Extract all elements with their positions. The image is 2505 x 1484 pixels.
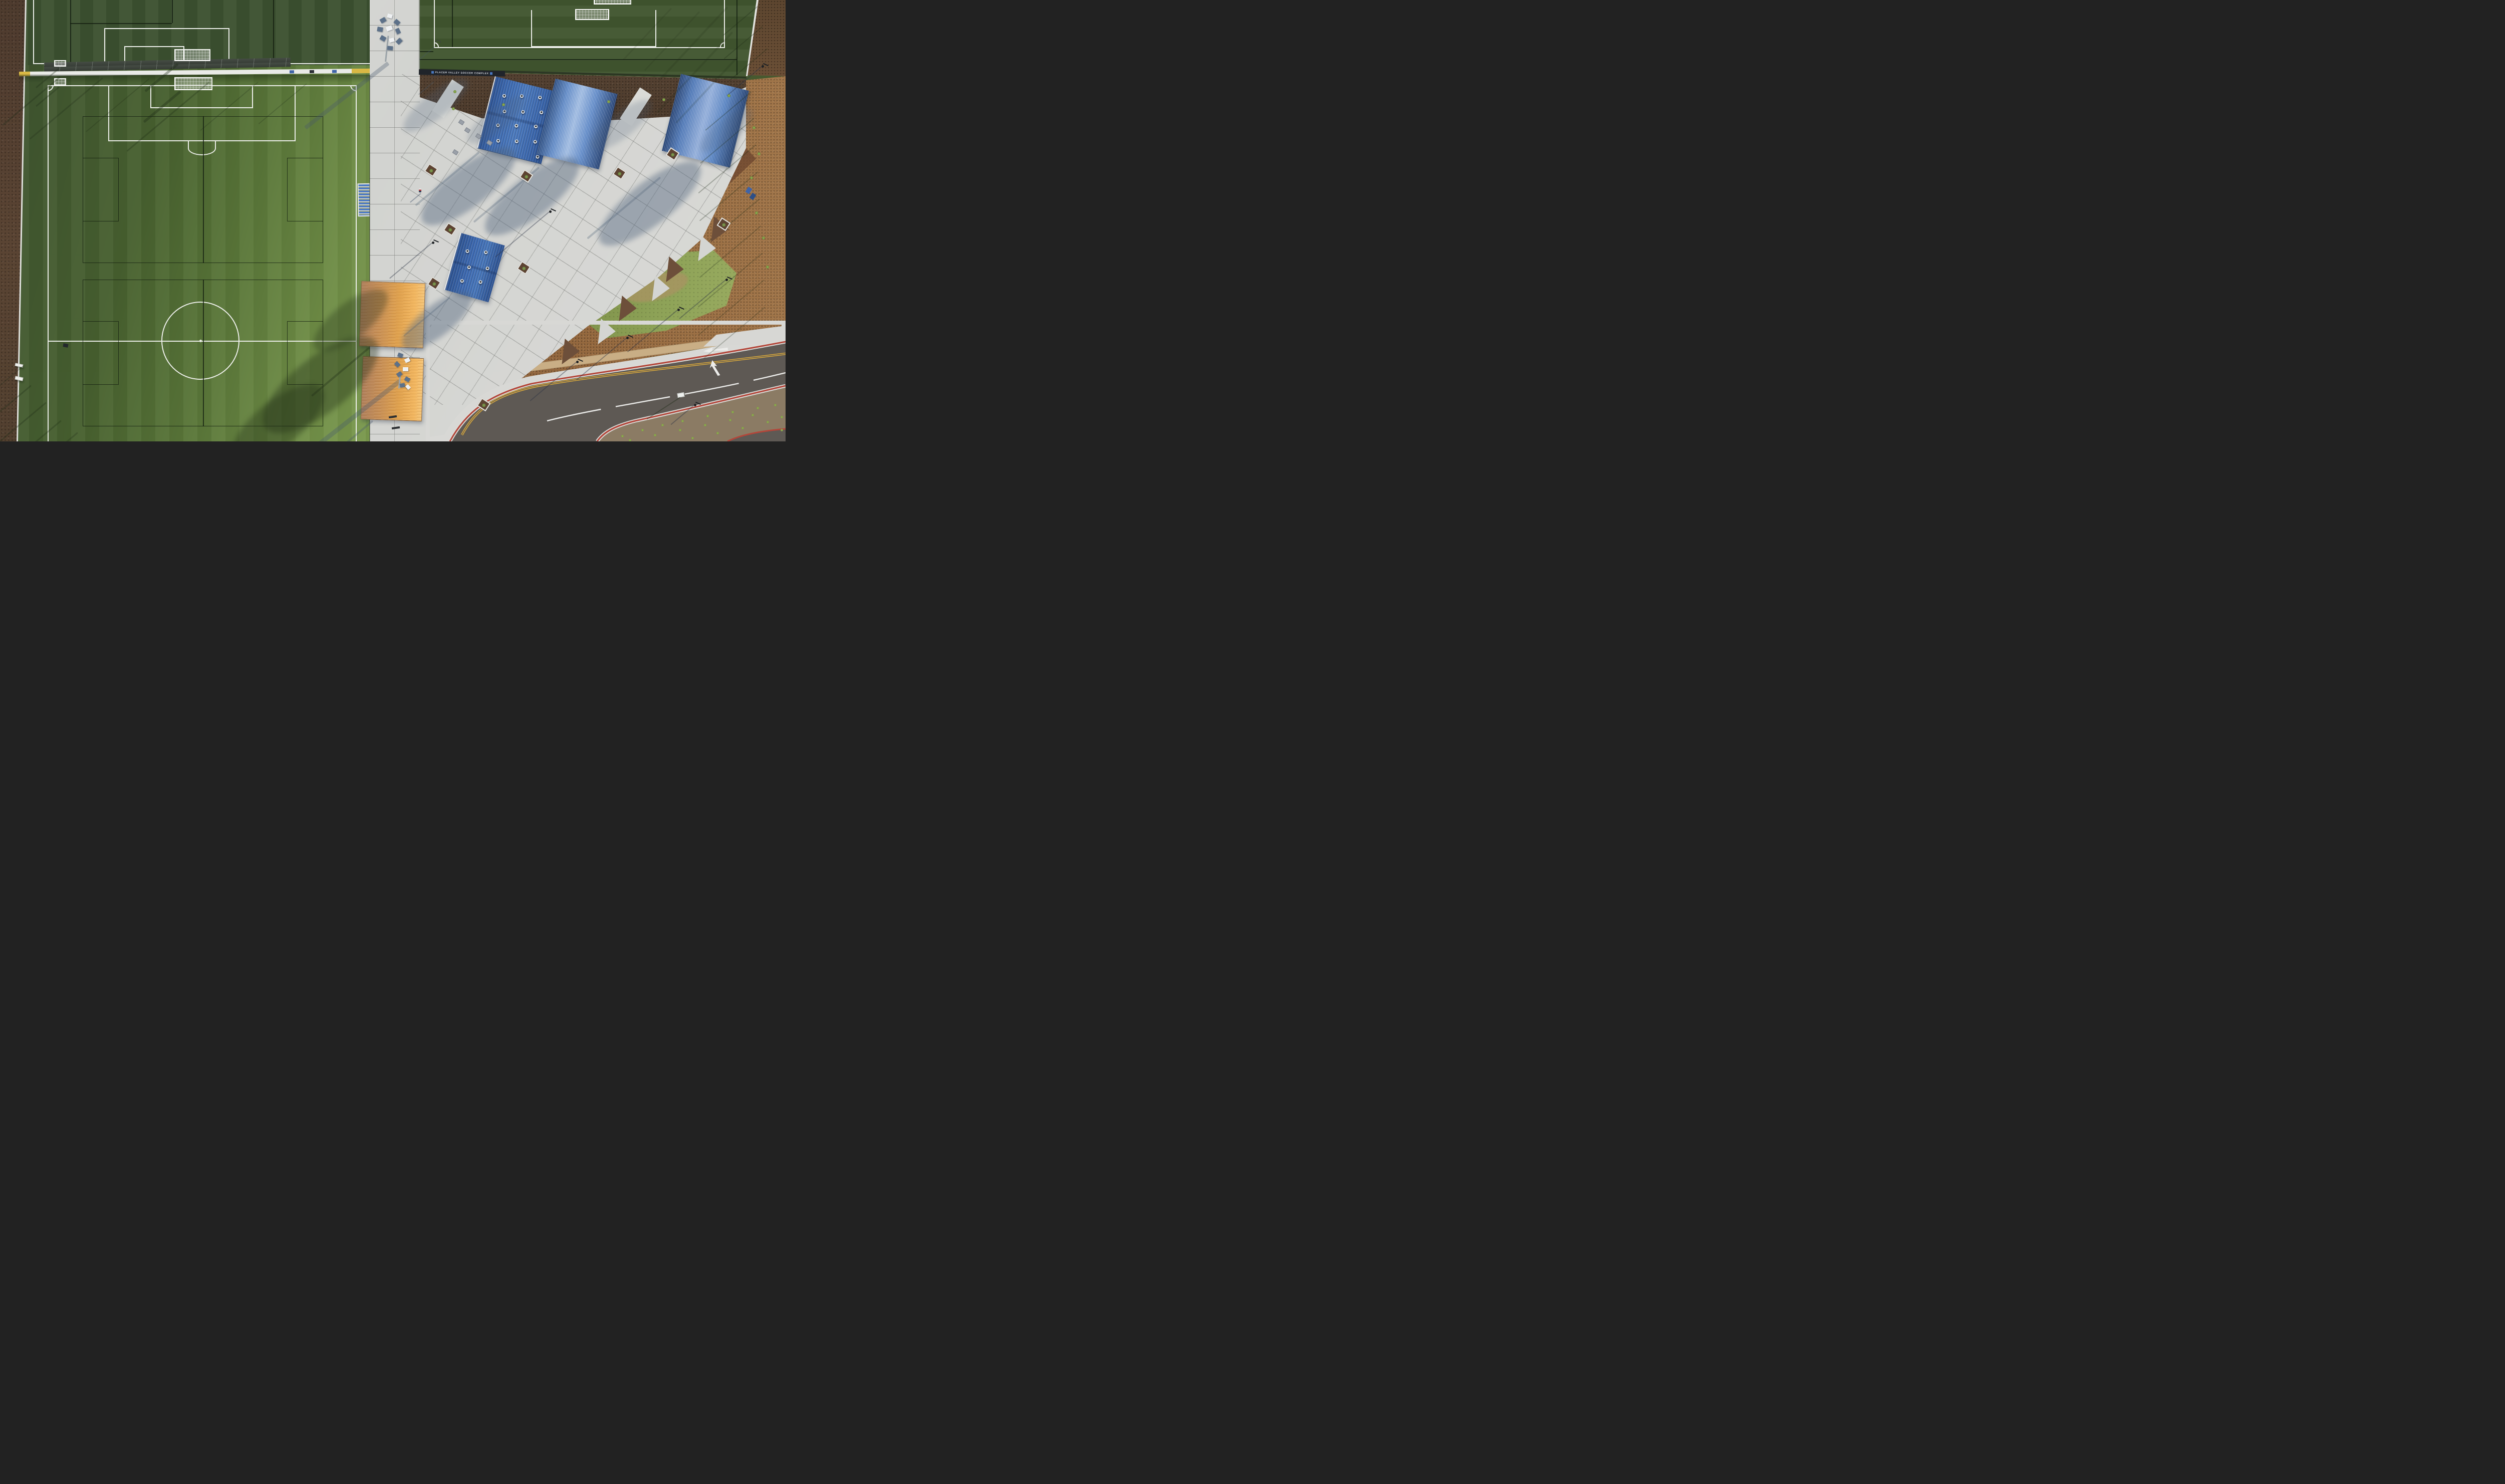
dome-skylight xyxy=(485,266,490,271)
subfield-b-halfway xyxy=(203,280,204,426)
access-road xyxy=(426,321,786,441)
dome-skylight xyxy=(538,95,542,99)
shrub xyxy=(452,107,455,110)
dome-skylight xyxy=(533,140,537,144)
dome-skylight xyxy=(515,139,519,143)
bed-plant xyxy=(621,435,624,437)
subfield-a-halfway xyxy=(203,116,204,263)
bed-plant xyxy=(729,419,731,421)
bed-plant xyxy=(741,427,744,429)
dome-skylight xyxy=(534,124,538,128)
light-pole xyxy=(626,337,629,339)
floodlight-panel xyxy=(399,383,405,388)
subfield-a-box-left xyxy=(83,158,119,221)
floodlight-panel xyxy=(403,367,408,371)
subfield-line xyxy=(70,23,172,24)
subfield-line xyxy=(172,0,173,23)
light-pole xyxy=(694,404,696,406)
touchline-left xyxy=(48,85,49,441)
tr-black-line xyxy=(736,0,737,75)
dome-skylight xyxy=(467,265,471,270)
subfield-a-box-right xyxy=(287,158,323,221)
shrub xyxy=(727,94,730,97)
light-pole xyxy=(576,361,579,363)
light-pole xyxy=(432,241,434,244)
dome-skylight xyxy=(483,250,488,255)
shrub xyxy=(755,211,758,214)
aerial-photo-scene: PLACER VALLEY SOCCER COMPLEX xyxy=(0,0,786,441)
touchline xyxy=(33,0,34,64)
dome-skylight xyxy=(465,249,470,254)
bed-plant xyxy=(661,424,664,426)
goal-top-right-field xyxy=(575,9,609,20)
bed-plant xyxy=(681,420,684,422)
tr-subfield-line xyxy=(420,51,433,52)
tr-line xyxy=(434,0,435,47)
dome-skylight xyxy=(539,110,543,114)
tr-black-line xyxy=(420,59,737,60)
banner-logo-right xyxy=(490,72,492,75)
dome-skylight xyxy=(502,94,506,98)
shrub xyxy=(758,152,761,155)
dome-skylight xyxy=(521,110,525,114)
wall-banner-ad xyxy=(332,70,337,73)
person xyxy=(419,188,421,192)
shrub xyxy=(662,98,665,101)
light-pole xyxy=(549,210,552,213)
banner-text: PLACER VALLEY SOCCER COMPLEX xyxy=(435,71,488,75)
bed-plant xyxy=(641,429,644,431)
wall-banner-ad xyxy=(310,70,314,73)
shrub xyxy=(762,236,765,239)
bed-plant xyxy=(706,415,709,417)
bed-plant xyxy=(679,429,681,431)
field-equipment-bin xyxy=(63,343,68,348)
tr-goal-line xyxy=(434,47,725,48)
floodlight-panel xyxy=(387,46,393,51)
light-pole xyxy=(725,279,728,281)
bed-plant xyxy=(767,421,769,423)
bed-plant xyxy=(691,437,694,439)
subfield-b-box-left xyxy=(83,321,119,385)
light-pole xyxy=(677,309,680,311)
bike-rack xyxy=(433,75,439,78)
bed-plant xyxy=(731,411,734,413)
bed-plant xyxy=(629,439,631,441)
dome-skylight xyxy=(514,124,518,128)
shrub xyxy=(453,90,456,93)
dome-skylight xyxy=(478,280,483,285)
goal-top-field xyxy=(174,49,210,61)
shrub xyxy=(766,266,769,269)
floodlight-panel xyxy=(377,27,383,32)
light-pole xyxy=(762,65,764,68)
bed-plant xyxy=(774,404,777,406)
subfield-line xyxy=(273,0,274,63)
dome-skylight xyxy=(460,279,464,283)
wall-banner-ad xyxy=(290,70,294,73)
bed-plant xyxy=(704,424,706,426)
tr-subfield-line xyxy=(452,0,453,47)
bed-plant xyxy=(757,407,759,409)
bed-plant xyxy=(751,414,754,416)
shrub xyxy=(502,103,505,106)
mini-goal xyxy=(54,60,66,67)
wall-pad-yellow-right xyxy=(352,69,372,73)
banner-logo-left xyxy=(431,71,434,74)
shrub xyxy=(750,176,753,179)
dome-skylight xyxy=(536,155,540,159)
bed-plant xyxy=(716,432,719,434)
bike-rack xyxy=(435,40,441,43)
bed-plant xyxy=(781,416,783,418)
bed-plant xyxy=(654,434,656,436)
subfield-line xyxy=(70,0,71,63)
bed-plant xyxy=(781,429,783,431)
goal-offframe-north xyxy=(594,0,631,5)
fence-walkway-right xyxy=(419,0,420,71)
shrub xyxy=(753,126,756,129)
shrub xyxy=(607,100,610,103)
dome-skylight xyxy=(496,139,500,143)
